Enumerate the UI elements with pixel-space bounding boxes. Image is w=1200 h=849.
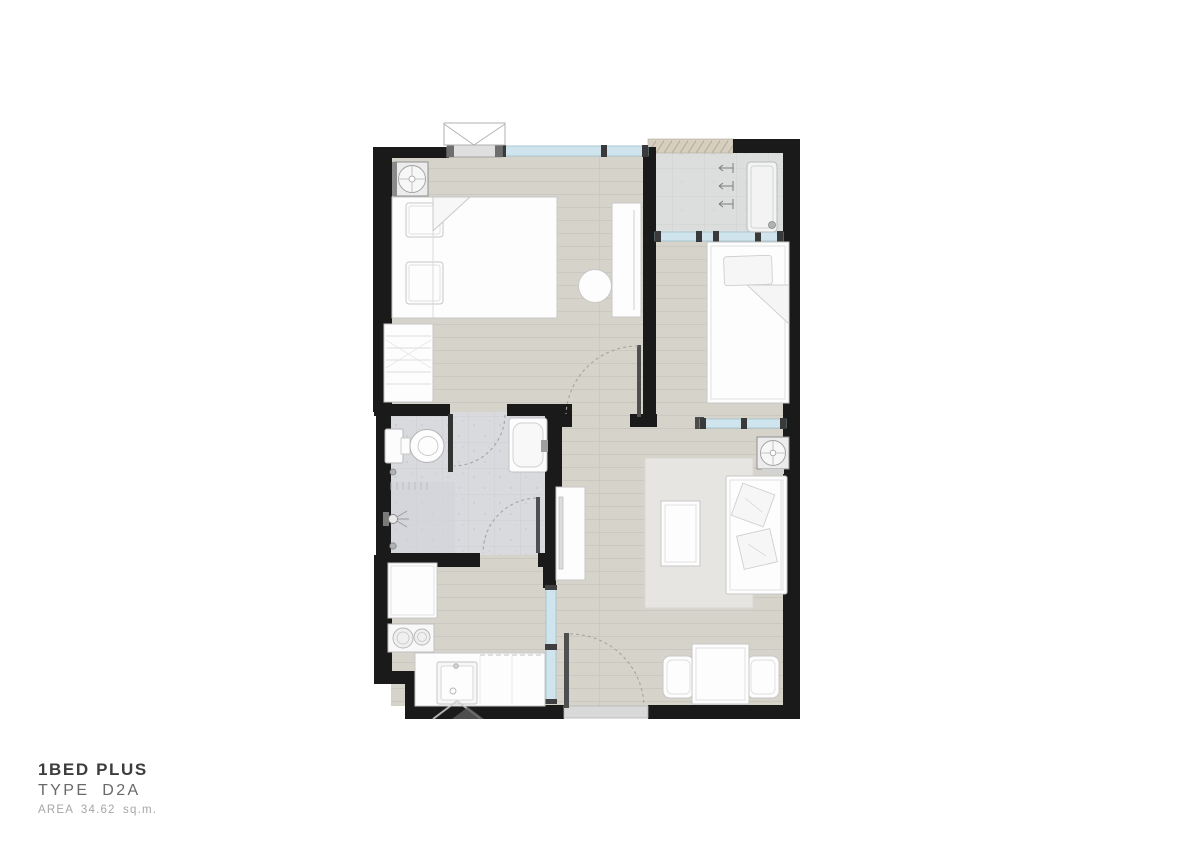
condenser-ledge <box>444 123 505 145</box>
shelf-unit <box>384 324 433 402</box>
floor-plan-page: 1BED PLUS TYPE D2A AREA 34.62 sq.m. <box>0 0 1200 849</box>
bathroom-bottom-door-leaf <box>536 497 540 553</box>
fridge <box>388 563 437 618</box>
wall-bathroom-top-left <box>374 404 450 416</box>
wall-kitchen-partition-post <box>543 557 556 588</box>
balcony-ledge-hatch <box>648 139 733 153</box>
wall-jog-horizontal <box>374 671 418 684</box>
round-stool <box>579 270 612 303</box>
stove-2-burner <box>388 624 434 652</box>
faucet <box>541 440 548 452</box>
single-bed <box>707 242 789 403</box>
wall-bottom-right <box>648 705 800 719</box>
plan-type: TYPE D2A <box>38 782 157 800</box>
tv <box>559 497 563 569</box>
kitchen-counter <box>415 653 545 706</box>
wall-top <box>373 147 449 158</box>
ac-unit-bedroom <box>392 162 428 196</box>
plan-area: AREA 34.62 sq.m. <box>38 804 157 816</box>
floor-drain <box>390 543 396 549</box>
entry-door-leaf <box>564 633 569 708</box>
coffee-table <box>661 501 700 566</box>
entry-threshold <box>564 706 648 718</box>
pillow <box>724 255 773 286</box>
second-room-furniture <box>707 242 789 403</box>
pillow <box>406 262 443 304</box>
wall-mid-vertical <box>643 147 656 415</box>
kitchen-sink <box>437 662 477 704</box>
sofa-cushion <box>737 529 778 570</box>
wall-mid-foot <box>630 414 657 427</box>
title-block: 1BED PLUS TYPE D2A AREA 34.62 sq.m. <box>38 760 157 816</box>
floor-drain <box>769 222 776 229</box>
wardrobe <box>612 203 641 317</box>
floor-drain <box>390 469 396 475</box>
sofa <box>726 476 787 594</box>
faucet <box>454 664 459 669</box>
wall-bathroom-right-stub <box>557 404 572 427</box>
vanity-sink <box>509 418 548 472</box>
wall-top-right-step <box>733 139 800 153</box>
shower-floor <box>389 482 455 555</box>
plan-title: 1BED PLUS <box>38 760 157 780</box>
bedroom-door-leaf <box>637 345 641 417</box>
dining-table <box>692 644 749 704</box>
queen-bed <box>392 197 557 318</box>
wall-bottom-left <box>405 705 564 719</box>
ac-unit-living <box>757 437 789 474</box>
floor-plan-svg <box>0 0 1200 849</box>
tv-console <box>556 487 585 580</box>
wall-bathroom-inner-stub <box>448 414 453 472</box>
